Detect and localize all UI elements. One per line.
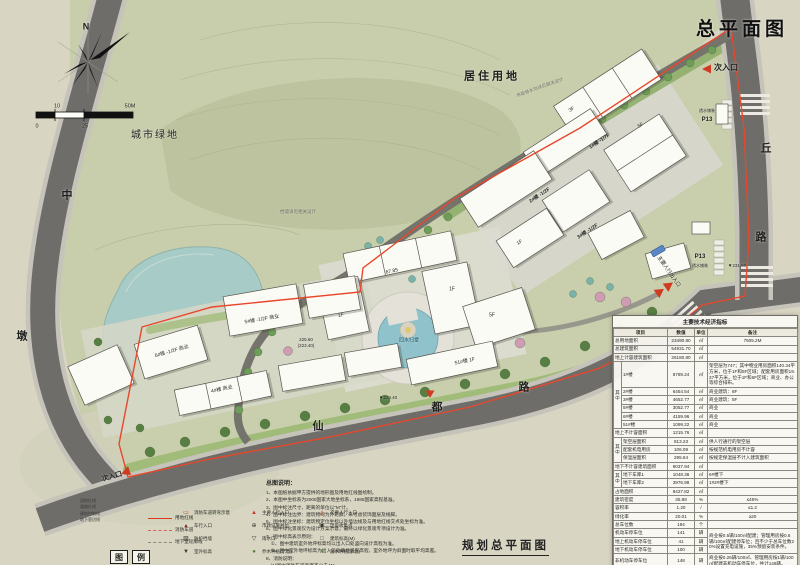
indicators-title: 主要技术经济指标 <box>613 316 797 328</box>
compass-north-label: N <box>83 23 90 32</box>
road-name: 都 <box>432 403 443 414</box>
indicator-cell: 绿化率 <box>614 512 668 520</box>
legend-title-char: 图 <box>110 550 128 564</box>
indicator-cell: 3#楼 <box>622 396 668 404</box>
legend-symbol-label: 次要人行入口 <box>330 510 357 516</box>
indicator-cell: 1.20 <box>668 504 695 512</box>
legend-symbol-label: 雨水口 <box>262 536 276 542</box>
legend-symbol-label: 防护挡墙 <box>194 536 212 542</box>
parking-label: P13 <box>695 254 706 260</box>
indicator-cell: 商业按0.26辆/100㎡、管理用房按1辆/100㎡配建非机动车停车位，共计14… <box>708 554 798 565</box>
legend-title: 图 例 <box>110 550 150 564</box>
indicator-cell: ㎡ <box>695 446 708 454</box>
indicator-cell: 架空层面积 <box>622 437 668 445</box>
indicator-cell: 按规范机电用房不计容 <box>708 446 798 454</box>
legend-symbol-item: □建筑标高(M) <box>316 532 380 545</box>
indicator-cell: 8789.24 <box>668 362 695 388</box>
scale-tick: 50M <box>125 104 136 110</box>
road-name: 丘 <box>761 144 772 155</box>
legend-symbol-icon: ▨ <box>180 535 192 542</box>
indicator-cell: 辆 <box>695 554 708 565</box>
indicator-cell: 供人行通行的架空层 <box>708 437 798 445</box>
indicator-cell: 数值 <box>668 329 695 337</box>
landuse-label: 城市绿地 <box>131 131 179 141</box>
scale-tick: 25 <box>82 124 88 130</box>
legend-symbol-item: ▭消防车道转弯示意 <box>180 506 244 519</box>
indicator-cell: 3052.77 <box>668 404 695 412</box>
indicator-cell: 813.23 <box>668 437 695 445</box>
indicator-cell: 9037.94 <box>668 462 695 470</box>
legend-symbol-label: 垃圾收集点 <box>330 523 353 529</box>
indicator-cell: 保温层面积 <box>622 454 668 462</box>
legend-symbol-label: 主要人行入口 <box>262 510 289 516</box>
legend-line-swatch <box>148 542 172 543</box>
indicator-cell: ㎡ <box>695 421 708 429</box>
indicator-cell: 54931.70 <box>668 345 695 353</box>
elevation-label: ▼223.40 <box>379 396 397 401</box>
indicator-cell: ㎡ <box>695 387 708 395</box>
indicator-cell: ㎡ <box>695 437 708 445</box>
indicator-cell: 地下车库1 <box>622 471 668 479</box>
indicator-cell: ㎡ <box>695 454 708 462</box>
indicator-cell: 辆 <box>695 537 708 545</box>
indicator-cell: 单位 <box>695 329 708 337</box>
indicator-cell <box>708 429 798 437</box>
indicator-cell: ㎡ <box>695 412 708 420</box>
legend-symbol-label: 乔木种植(示意) <box>262 549 292 555</box>
legend-line-swatch <box>148 530 172 531</box>
indicator-cell: ㎡ <box>695 353 708 361</box>
road-name: 路 <box>756 233 767 244</box>
indicator-cell: 其中 <box>614 471 622 488</box>
indicator-cell: ㎡ <box>695 429 708 437</box>
indicator-cell: ㎡ <box>695 479 708 487</box>
indicator-cell <box>708 521 798 529</box>
indicator-cell: 地下车库2 <box>622 479 668 487</box>
indicator-cell: 194 <box>668 521 695 529</box>
indicator-cell: ≤1.2 <box>708 504 798 512</box>
legend-line-swatch <box>148 518 172 519</box>
indicator-cell <box>708 353 798 361</box>
indicator-cell: 地上不计容面积 <box>614 429 668 437</box>
indicator-cell: 配套机电用房 <box>622 446 668 454</box>
indicator-cell: 41 <box>668 537 695 545</box>
indicator-cell: 个 <box>695 521 708 529</box>
legend-symbol-item: ▲主要人行入口 <box>248 506 312 519</box>
indicator-cell: 地上机动车停车位 <box>614 537 668 545</box>
indicator-cell: 4652.77 <box>668 396 695 404</box>
note-line: 2、本图中坐标系为2000国家大地坐标系，1985国家高程基准。 <box>266 496 476 503</box>
parking-label: 透水铺装 <box>692 264 708 268</box>
landuse-label: 居住用地 <box>464 72 520 83</box>
legend-symbol-item: △次要人行入口 <box>316 506 380 519</box>
indicator-cell: 占地面积 <box>614 487 668 495</box>
indicator-cell: 141 <box>668 529 695 537</box>
legend-symbol-label: 消防车道转弯示意 <box>194 510 230 516</box>
indicator-cell: 商业建筑：5F <box>708 396 798 404</box>
legend-symbol-label: 建筑标高(M) <box>330 536 355 542</box>
parking-label: P13 <box>702 117 713 123</box>
legend-symbol-label: 市政设施井位 <box>262 523 289 529</box>
indicator-cell: ≥20 <box>708 512 798 520</box>
indicator-cell: 辆 <box>695 529 708 537</box>
legend-line-type-list: 用地红线道路红线建筑控制线地下室边线 <box>80 498 100 524</box>
legend-symbol-icon: ∗ <box>316 548 328 555</box>
indicator-cell: 按规定保温层不计入建筑面积 <box>708 454 798 462</box>
legend-symbol-label: 车行入口 <box>194 523 212 529</box>
legend-symbol-icon: ▲ <box>248 510 260 516</box>
indicator-cell: 商业 <box>708 421 798 429</box>
indicator-cell: 建筑密度 <box>614 496 668 504</box>
indicator-cell: 容积率 <box>614 504 668 512</box>
legend-symbol-icon: ● <box>248 549 260 555</box>
legend-symbol-item: ▼室外标高 <box>180 545 244 558</box>
parking-label: 透水铺装 <box>699 109 715 113</box>
indicator-cell: ㎡ <box>695 396 708 404</box>
indicator-cell <box>708 487 798 495</box>
legend-symbol-item: ▨防护挡墙 <box>180 532 244 545</box>
legend-symbol-icon: ▣ <box>316 522 328 529</box>
indicator-cell: 35.88 <box>668 496 695 504</box>
legend-symbol-icon: ⊕ <box>248 522 260 529</box>
indicator-cell: 7505.2M <box>708 337 798 345</box>
indicator-cell: 地上计容建筑面积 <box>614 353 668 361</box>
indicator-cell: 6454.54 <box>668 387 695 395</box>
indicator-cell: 1#楼 <box>622 362 668 388</box>
legend-symbol-icon: ▭ <box>180 509 192 516</box>
legend-symbol-icon: ▽ <box>248 535 260 542</box>
elevation-label: 225.60 <box>299 338 313 343</box>
indicator-cell: 其中 <box>614 437 622 462</box>
indicator-cell: 23490.80 <box>668 337 695 345</box>
indicator-cell: 6#楼 <box>622 412 668 420</box>
indicator-cell: ㎡ <box>695 471 708 479</box>
indicator-cell: 20.01 <box>668 512 695 520</box>
indicator-cell: ≤45% <box>708 496 798 504</box>
indicator-cell: 8427.82 <box>668 487 695 495</box>
indicator-cell: / <box>695 504 708 512</box>
legend-symbol-label: 室外标高 <box>194 549 212 555</box>
annotation-label: 挡墙详见相关设计 <box>280 210 316 215</box>
indicator-cell: 机动车停车位 <box>614 529 668 537</box>
legend-symbol-label: 灌木种植(示意) <box>330 549 360 555</box>
indicator-cell: 295.64 <box>668 454 695 462</box>
indicator-cell: 商业按0.5辆/100㎡配建；管理用房按0.6辆/100㎡配建停车位；且不少于总… <box>708 529 798 554</box>
entrance-label: 次入口 <box>714 64 738 72</box>
legend-symbol-item: ▽雨水口 <box>248 532 312 545</box>
legend-symbol-item: ●乔木种植(示意) <box>248 545 312 558</box>
indicator-cell <box>708 345 798 353</box>
site-plan-sheet: N0102550M居住用地城市绿地中墩仙都路丘路次入口次入口主要人行出入口透水铺… <box>0 0 800 565</box>
indicator-cell: 其中 <box>614 362 622 429</box>
indicator-cell: 1#2#楼下 <box>708 479 798 487</box>
indicator-cell: ㎡ <box>695 404 708 412</box>
legend-title-char: 例 <box>132 550 150 564</box>
legend-symbol-item: ▣垃圾收集点 <box>316 519 380 532</box>
indicator-cell: ㎡ <box>695 462 708 470</box>
legend-symbol-item: ▴车行入口 <box>180 519 244 532</box>
legend-symbol-item: ⊕市政设施井位 <box>248 519 312 532</box>
indicator-cell: ㎡ <box>695 345 708 353</box>
legend-line-type-label: 地下室边线 <box>80 517 100 523</box>
indicator-cell: 2#楼 <box>622 387 668 395</box>
indicator-cell: 架空层为747；其中物业用房面积140.34平方米，位于1F和5F区域；配套用房… <box>708 362 798 388</box>
indicator-cell: ㎡ <box>695 362 708 388</box>
indicator-cell: 100 <box>668 546 695 554</box>
indicator-cell: 1215.76 <box>668 429 695 437</box>
indicator-cell: 备注 <box>708 329 798 337</box>
legend-symbol-item: ∗灌木种植(示意) <box>316 545 380 558</box>
elevation-label: ▼231.50 <box>728 264 746 269</box>
note-line: 1、本图纸依据甲方提供的地形图及用地红线图绘制。 <box>266 489 476 496</box>
indicator-cell: 1099.22 <box>668 421 695 429</box>
indicator-cell: % <box>695 496 708 504</box>
indicator-cell: 商业 <box>708 412 798 420</box>
legend-symbol-icon: △ <box>316 509 328 516</box>
water-feature-label: 四水归堂 <box>399 339 419 344</box>
indicator-cell: 106.09 <box>668 446 695 454</box>
notes-title: 总图说明： <box>266 478 476 487</box>
indicators-panel: 主要技术经济指标 项目数值单位备注总用地面积23490.80㎡7505.2M总建… <box>612 315 798 565</box>
building-label: 5F <box>489 314 495 319</box>
legend-symbol-icon: ▴ <box>180 522 192 529</box>
indicator-cell: 地下不计容建筑面积 <box>614 462 668 470</box>
road-name: 仙 <box>313 422 324 433</box>
indicator-cell: % <box>695 512 708 520</box>
scale-tick: 0 <box>35 124 38 130</box>
indicator-cell: 总用地面积 <box>614 337 668 345</box>
indicator-cell: 51#楼 <box>622 421 668 429</box>
legend-symbol-icon: ▼ <box>180 549 192 555</box>
legend-symbol-grid: ▭消防车道转弯示意▲主要人行入口△次要人行入口▴车行入口⊕市政设施井位▣垃圾收集… <box>180 506 380 558</box>
legend-symbol-icon: □ <box>316 536 328 542</box>
indicator-cell: ㎡ <box>695 487 708 495</box>
sheet-title: 总平面图 <box>696 20 788 39</box>
indicator-cell: 3976.98 <box>668 479 695 487</box>
indicator-cell: 1048.36 <box>668 471 695 479</box>
indicator-cell: 非机动车停车位 <box>614 554 668 565</box>
indicator-cell <box>708 462 798 470</box>
road-name: 墩 <box>17 332 28 343</box>
indicators-table: 项目数值单位备注总用地面积23490.80㎡7505.2M总建筑面积54931.… <box>613 328 798 565</box>
road-name: 中 <box>62 191 73 202</box>
indicator-cell: 4159.96 <box>668 412 695 420</box>
indicator-cell: 地下机动车停车位 <box>614 546 668 554</box>
indicator-cell: 辆 <box>695 546 708 554</box>
indicator-cell: ㎡ <box>695 337 708 345</box>
scale-tick: 10 <box>54 104 60 110</box>
elevation-label: (223.40) <box>298 344 315 349</box>
road-name: 路 <box>519 383 530 394</box>
indicator-cell: 总建筑面积 <box>614 345 668 353</box>
indicator-cell: 148 <box>668 554 695 565</box>
indicator-cell: 商业建筑：8F <box>708 387 798 395</box>
building-label: 1F <box>449 288 455 293</box>
indicator-cell: 6#楼下 <box>708 471 798 479</box>
indicator-cell: 5#楼 <box>622 404 668 412</box>
indicator-cell: 26180.80 <box>668 353 695 361</box>
indicator-cell: 总车位数 <box>614 521 668 529</box>
indicator-cell: 项目 <box>614 329 668 337</box>
indicator-cell: 商业 <box>708 404 798 412</box>
